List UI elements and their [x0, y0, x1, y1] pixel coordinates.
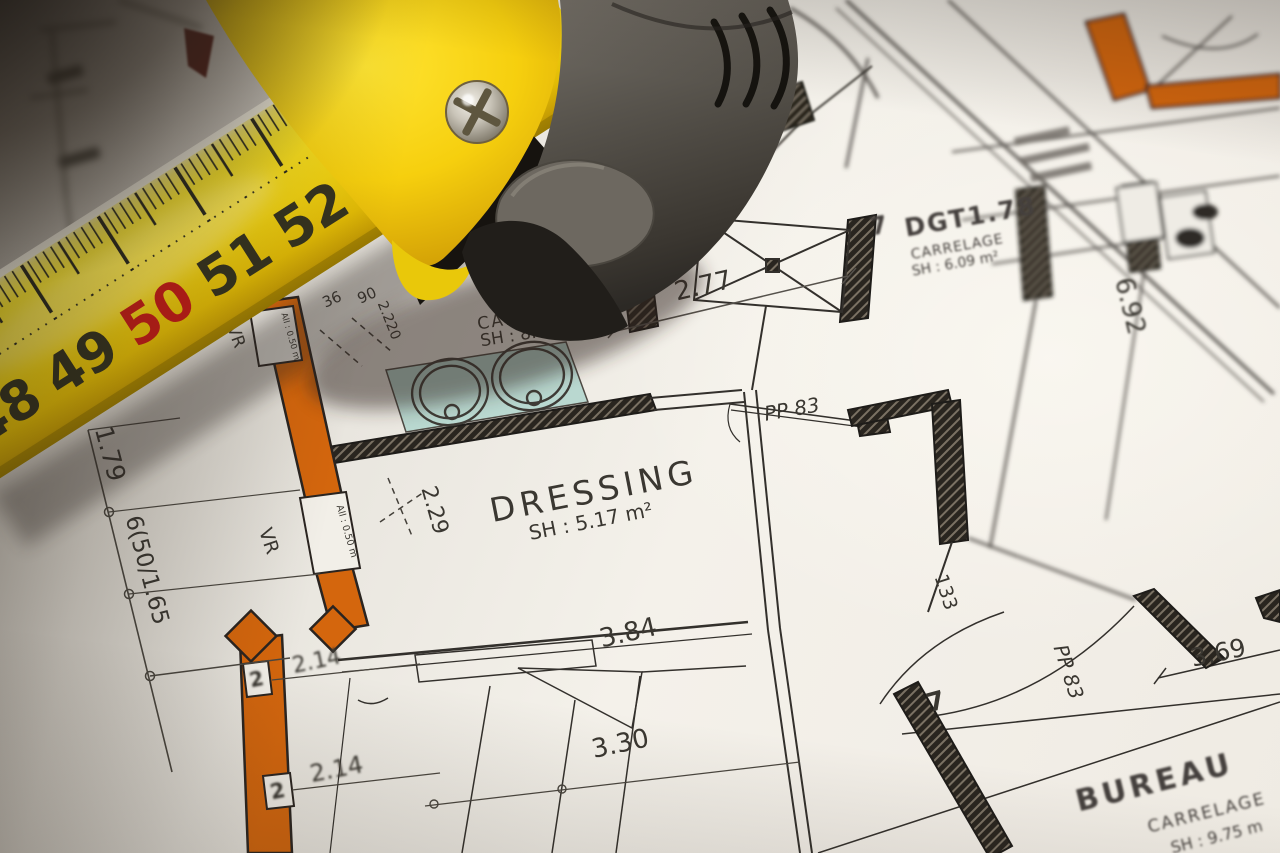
window-tag-vr-lower: VR: [254, 525, 283, 557]
floor-plan-and-tape: AINS CARRELAGE SH : 8.52 m² 7 DGT1.78 CA…: [0, 0, 1280, 853]
dim-692: 6.92: [1108, 274, 1151, 337]
photo-tape-measure-on-floor-plan: AINS CARRELAGE SH : 8.52 m² 7 DGT1.78 CA…: [0, 0, 1280, 853]
dim-384: 3.84: [597, 612, 660, 654]
wall-segment: [894, 682, 1012, 853]
dim-330: 3.30: [589, 723, 652, 764]
dim-133: 133: [930, 572, 962, 613]
room-number-dgt: 7: [867, 210, 889, 242]
dim-229: 2.29: [415, 483, 453, 537]
case-red-part: [184, 28, 214, 78]
dim-650-165: 6(50/1.65: [120, 513, 174, 628]
